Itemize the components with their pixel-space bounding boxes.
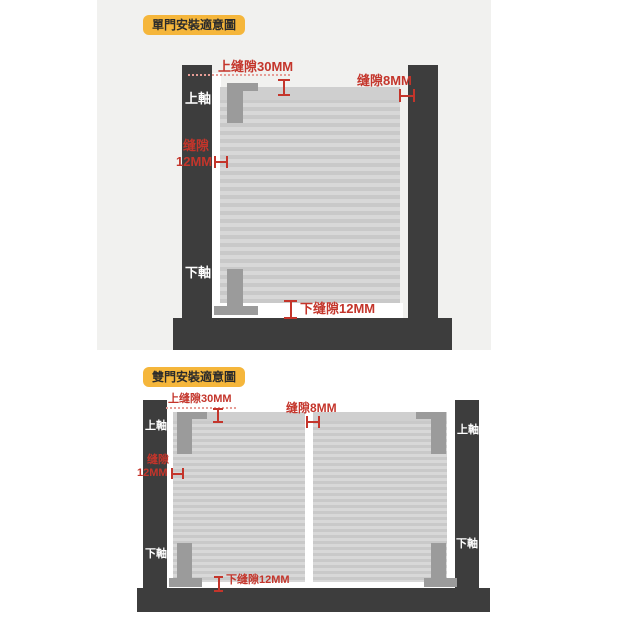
i-beam-mark-icon — [278, 79, 290, 96]
single-upper-axis-label: 上軸 — [185, 92, 211, 105]
single-bottom-hinge-block — [227, 269, 243, 309]
double-ground-base — [137, 588, 490, 612]
double-left-gap-label-line2: 12MM — [137, 468, 168, 479]
double-top-gap-dotted-line — [166, 407, 236, 409]
double-right-door-panel — [313, 412, 447, 582]
double-right-upper-axis-label: 上軸 — [457, 425, 479, 436]
double-left-upper-axis-label: 上軸 — [145, 421, 167, 432]
double-left-door-panel — [173, 412, 305, 582]
double-left-top-hinge-block — [177, 412, 192, 454]
double-left-gap-label-line1: 缝隙 — [147, 455, 169, 466]
single-top-gap-dotted-line — [188, 74, 290, 76]
single-top-hinge-block — [227, 83, 243, 123]
single-lower-axis-label: 下軸 — [185, 266, 211, 279]
single-door-panel — [220, 87, 400, 303]
single-right-gap-label: 缝隙8MM — [357, 74, 412, 87]
double-right-bottom-hinge-block — [431, 543, 446, 582]
single-left-gap-label-line1: 缝隙 — [183, 139, 209, 152]
double-door-title-badge: 雙門安裝適意圖 — [143, 367, 245, 387]
h-bar-mark-icon — [306, 416, 320, 428]
double-right-bottom-hinge-foot — [424, 578, 457, 587]
single-top-gap-label: 上缝隙30MM — [218, 60, 293, 73]
h-bar-mark-icon — [214, 156, 228, 168]
i-beam-mark-icon — [213, 408, 223, 423]
double-bottom-gap-label: 下缝隙12MM — [226, 575, 290, 586]
double-left-bottom-hinge-block — [177, 543, 192, 582]
single-ground-base — [173, 318, 452, 350]
single-left-gap-label-line2: 12MM — [176, 155, 212, 168]
double-left-bottom-hinge-foot — [169, 578, 202, 587]
double-top-gap-label: 上缝隙30MM — [168, 394, 232, 405]
double-right-lower-axis-label: 下軸 — [456, 539, 478, 550]
i-beam-mark-icon — [214, 576, 223, 592]
installation-guide-image: 單門安裝適意圖 上缝隙30MM 缝隙8MM 缝隙 12MM 上軸 下軸 下缝隙1… — [0, 0, 620, 620]
single-door-title-badge: 單門安裝適意圖 — [143, 15, 245, 35]
double-center-gap-label: 缝隙8MM — [286, 402, 337, 414]
h-bar-mark-icon — [399, 89, 415, 102]
h-bar-mark-icon — [171, 468, 184, 479]
single-bottom-hinge-foot — [214, 306, 258, 315]
double-left-lower-axis-label: 下軸 — [145, 549, 167, 560]
i-beam-mark-icon — [284, 300, 297, 319]
single-right-pillar — [408, 65, 438, 318]
double-right-top-hinge-block — [431, 412, 446, 454]
single-bottom-gap-label: 下缝隙12MM — [300, 302, 375, 315]
